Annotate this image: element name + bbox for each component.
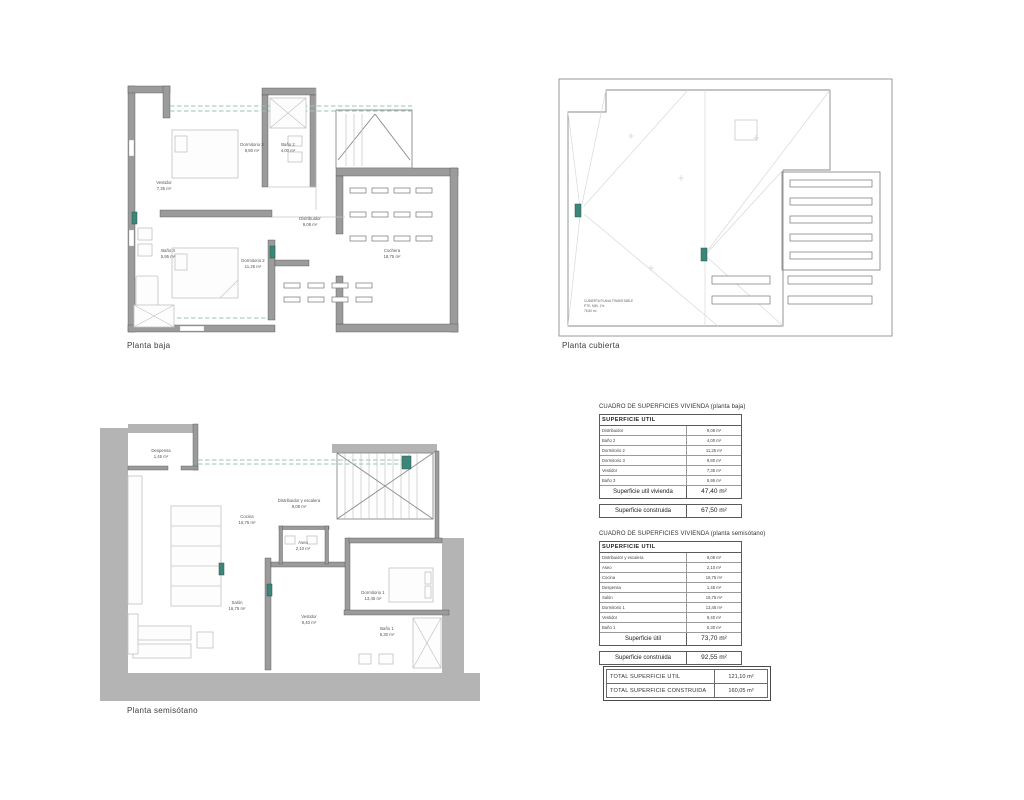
total-util-label: TOTAL SUPERFICIE UTIL [607, 670, 714, 683]
room-area-bano-3: 5,95 m² [161, 254, 176, 259]
room-area-dormitorio-2: 11,25 m² [245, 264, 262, 269]
row-value: 9,40 m² [686, 613, 741, 622]
utility-marker-icon [402, 456, 411, 469]
room-label-bano-1: Baño 1 [380, 626, 394, 631]
room-area-cocina: 16,75 m² [239, 520, 257, 525]
total-construida-value: 160,05 m² [714, 684, 767, 697]
table-row: Dormitorio 113,45 m² [600, 603, 741, 613]
row-value: 16,75 m² [686, 573, 741, 582]
room-label-cochera: Cochera [384, 248, 401, 253]
subtotal-value: 47,40 m² [686, 486, 741, 498]
table-row: Baño 15,30 m² [600, 623, 741, 633]
room-label-salon: Salón [232, 600, 244, 605]
subtotal-row: Superficie útil73,70 m² [600, 633, 741, 645]
room-label-despensa: Despensa [151, 448, 171, 453]
planta-cubierta-drawing: CUBIERTA PLANA TRANSITABLE PTE. MIN. 1% … [558, 78, 894, 340]
room-area-dormitorio-3: 9,80 m² [245, 148, 260, 153]
room-label-dormitorio-2: Dormitorio 2 [241, 258, 265, 263]
row-label: Baño 1 [600, 623, 686, 632]
drawing-sheet: Dormitorio 3 9,80 m² Baño 2 4,00 m² Vest… [0, 0, 1024, 800]
row-value: 5,95 m² [686, 476, 741, 485]
row-value: 9,80 m² [686, 456, 741, 465]
subtotal-row: Superficie util vivienda47,40 m² [600, 486, 741, 498]
total-util-value: 121,10 m² [714, 670, 767, 683]
surface-table-semisotano-grid: SUPERFICIE UTIL Distribuidor y escalera9… [599, 541, 742, 646]
row-label: Dormitorio 3 [600, 456, 686, 465]
drain-marker-icon [575, 204, 581, 217]
row-value: 4,00 m² [686, 436, 741, 445]
row-value: 11,25 m² [686, 446, 741, 455]
surface-table-baja: CUADRO DE SUPERFICIES VIVIENDA (planta b… [599, 404, 742, 518]
room-area-aseo: 2,10 m² [296, 546, 311, 551]
plan-title-semisotano: Planta semisótano [127, 706, 198, 715]
surface-table-semisotano: CUADRO DE SUPERFICIES VIVIENDA (planta s… [599, 531, 742, 665]
row-value: 9,08 m² [686, 553, 741, 562]
surface-table-semisotano-title: CUADRO DE SUPERFICIES VIVIENDA (planta s… [599, 531, 742, 537]
table-row: Despensa1,45 m² [600, 583, 741, 593]
room-label-vestidor: Vestidor [156, 180, 172, 185]
row-label: Aseo [600, 563, 686, 572]
row-label: Distribuidor [600, 426, 686, 435]
planta-semisotano-drawing: Despensa 1,45 m² Cocina 16,75 m² Distrib… [97, 418, 483, 704]
room-area-salon: 16,75 m² [229, 606, 247, 611]
row-value: 2,10 m² [686, 563, 741, 572]
construida-label: Superficie construida [600, 652, 686, 664]
row-value: 9,08 m² [686, 426, 741, 435]
subtotal-label: Superficie util vivienda [600, 486, 686, 498]
row-value: 5,30 m² [686, 623, 741, 632]
surface-table-baja-grid: SUPERFICIE UTIL Distribuidor9,08 m² Baño… [599, 414, 742, 499]
row-value: 13,45 m² [686, 603, 741, 612]
room-area-cochera: 18,75 m² [384, 254, 402, 259]
row-value: 16,75 m² [686, 593, 741, 602]
row-label: Cocina [600, 573, 686, 582]
room-area-bano-1: 5,30 m² [380, 632, 395, 637]
row-label: Baño 2 [600, 436, 686, 445]
total-util-row: TOTAL SUPERFICIE UTIL 121,10 m² [606, 669, 768, 684]
room-area-vestidor-semi: 9,40 m² [302, 620, 317, 625]
table-row: Vestidor7,35 m² [600, 466, 741, 476]
table-row: Cocina16,75 m² [600, 573, 741, 583]
construida-row: Superficie construida67,50 m² [599, 504, 742, 518]
table-row: Baño 35,95 m² [600, 476, 741, 486]
room-label-bano-2: Baño 2 [281, 142, 295, 147]
table-row: Salón16,75 m² [600, 593, 741, 603]
construida-label: Superficie construida [600, 505, 686, 517]
construida-row: Superficie construida92,55 m² [599, 651, 742, 665]
table-row: Vestidor9,40 m² [600, 613, 741, 623]
row-label: Vestidor [600, 613, 686, 622]
utility-marker-icon [270, 246, 275, 258]
planta-baja-drawing: Dormitorio 3 9,80 m² Baño 2 4,00 m² Vest… [120, 80, 460, 340]
cubierta-note-line3: 76,80 m² [584, 309, 597, 313]
row-label: Distribuidor y escalera [600, 553, 686, 562]
cubierta-note-line2: PTE. MIN. 1% [584, 304, 604, 308]
row-label: Dormitorio 2 [600, 446, 686, 455]
room-label-dormitorio-1: Dormitorio 1 [361, 590, 385, 595]
baja-stair-block [336, 110, 412, 168]
total-construida-label: TOTAL SUPERFICIE CONSTRUIDA [607, 684, 714, 697]
surface-table-header: SUPERFICIE UTIL [600, 415, 741, 426]
room-label-distribuidor-escalera: Distribuidor y escalera [278, 498, 321, 503]
utility-marker-icon [267, 584, 272, 596]
row-label: Salón [600, 593, 686, 602]
utility-marker-icon [219, 563, 224, 575]
row-value: 7,35 m² [686, 466, 741, 475]
subtotal-value: 73,70 m² [686, 633, 741, 645]
room-area-bano-2: 4,00 m² [281, 148, 296, 153]
room-label-dormitorio-3: Dormitorio 3 [240, 142, 264, 147]
construida-value: 92,55 m² [686, 652, 741, 664]
table-row: Dormitorio 211,25 m² [600, 446, 741, 456]
table-row: Distribuidor9,08 m² [600, 426, 741, 436]
room-label-cocina: Cocina [240, 514, 254, 519]
room-label-aseo: Aseo [298, 540, 308, 545]
subtotal-label: Superficie útil [600, 633, 686, 645]
totals-table: TOTAL SUPERFICIE UTIL 121,10 m² TOTAL SU… [603, 666, 771, 701]
drain-marker-icon [701, 248, 707, 261]
room-label-distribuidor: Distribuidor [299, 216, 321, 221]
room-area-distribuidor-escalera: 9,08 m² [292, 504, 307, 509]
room-label-bano-3: Baño 3 [161, 248, 175, 253]
table-row: Baño 24,00 m² [600, 436, 741, 446]
room-label-vestidor-semi: Vestidor [301, 614, 317, 619]
row-label: Baño 3 [600, 476, 686, 485]
room-area-vestidor: 7,35 m² [157, 186, 172, 191]
table-row: Dormitorio 39,80 m² [600, 456, 741, 466]
semi-furniture [128, 476, 441, 668]
row-label: Despensa [600, 583, 686, 592]
cubierta-note-line1: CUBIERTA PLANA TRANSITABLE [584, 299, 633, 303]
room-area-despensa: 1,45 m² [154, 454, 169, 459]
row-label: Vestidor [600, 466, 686, 475]
construida-value: 67,50 m² [686, 505, 741, 517]
plan-title-baja: Planta baja [127, 341, 170, 350]
plan-title-cubierta: Planta cubierta [562, 341, 620, 350]
surface-table-baja-title: CUADRO DE SUPERFICIES VIVIENDA (planta b… [599, 404, 742, 410]
utility-marker-icon [132, 212, 137, 224]
row-value: 1,45 m² [686, 583, 741, 592]
table-row: Distribuidor y escalera9,08 m² [600, 553, 741, 563]
semi-stairs [337, 453, 433, 519]
surface-table-header: SUPERFICIE UTIL [600, 542, 741, 553]
row-label: Dormitorio 1 [600, 603, 686, 612]
total-construida-row: TOTAL SUPERFICIE CONSTRUIDA 160,05 m² [606, 683, 768, 698]
baja-garage-slats [284, 188, 432, 302]
room-area-distribuidor: 9,08 m² [303, 222, 318, 227]
table-row: Aseo2,10 m² [600, 563, 741, 573]
semi-section-lines [198, 460, 402, 464]
room-area-dormitorio-1: 13,45 m² [365, 596, 383, 601]
